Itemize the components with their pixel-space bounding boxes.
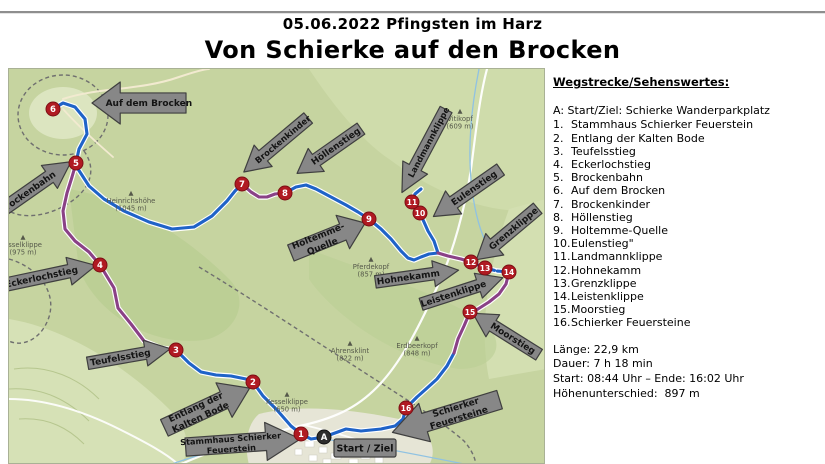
route-marker-1: 1 <box>294 427 308 441</box>
svg-text:▲: ▲ <box>129 189 134 197</box>
route-marker-4: 4 <box>93 258 107 272</box>
sidebar: Wegstrecke/Sehenswertes: A: Start/Ziel: … <box>553 76 819 402</box>
route-list-item: 13.Grenzklippe <box>553 277 819 290</box>
route-marker-14: 14 <box>502 265 516 279</box>
svg-text:8: 8 <box>282 189 288 199</box>
svg-text:2: 2 <box>250 378 256 388</box>
route-marker-11: 11 <box>405 195 419 209</box>
route-list-item: 10.Eulenstieg" <box>553 237 819 250</box>
svg-text:Auf dem Brocken: Auf dem Brocken <box>106 99 193 109</box>
svg-text:(848 m): (848 m) <box>403 350 430 358</box>
svg-text:15: 15 <box>465 308 475 317</box>
stat-line: Höhenunterschied: 897 m <box>553 387 819 402</box>
route-list-item: 14.Leistenklippe <box>553 290 819 303</box>
route-marker-2: 2 <box>246 375 260 389</box>
map-canvas: ▲Heinrichshöhe(1045 m)▲Pferdekopf(857 m)… <box>9 69 545 464</box>
svg-text:4: 4 <box>97 261 103 271</box>
route-list-item: 4.Eckerlochstieg <box>553 158 819 171</box>
route-marker-A: A <box>317 430 331 444</box>
route-marker-12: 12 <box>464 255 478 269</box>
route-marker-7: 7 <box>235 177 249 191</box>
route-list-item: 15.Moorstieg <box>553 303 819 316</box>
route-list-item: 6.Auf dem Brocken <box>553 184 819 197</box>
svg-text:▲: ▲ <box>348 339 353 347</box>
svg-text:(650 m): (650 m) <box>273 406 300 414</box>
svg-text:14: 14 <box>504 268 514 277</box>
svg-text:3: 3 <box>173 346 179 356</box>
svg-text:▲: ▲ <box>285 390 290 398</box>
svg-text:(822 m): (822 m) <box>336 355 363 363</box>
start-ziel-label: Start / Ziel <box>334 439 396 457</box>
route-marker-13: 13 <box>478 261 492 275</box>
route-list-item: 16.Schierker Feuersteine <box>553 316 819 329</box>
stats: Länge: 22,9 kmDauer: 7 h 18 minStart: 08… <box>553 343 819 402</box>
svg-text:6: 6 <box>50 105 56 115</box>
svg-text:1: 1 <box>298 430 304 440</box>
route-list-item: 9.Holtemme-Quelle <box>553 224 819 237</box>
svg-text:▲: ▲ <box>415 334 420 342</box>
route-marker-3: 3 <box>169 343 183 357</box>
header-rule <box>0 11 825 13</box>
svg-text:7: 7 <box>239 180 245 190</box>
svg-text:(1045 m): (1045 m) <box>115 205 147 213</box>
stat-line: Start: 08:44 Uhr – Ende: 16:02 Uhr <box>553 372 819 387</box>
route-list: 1.Stammhaus Schierker Feuerstein2.Entlan… <box>553 118 819 329</box>
svg-text:(609 m): (609 m) <box>446 123 473 131</box>
route-list-item: 8.Höllenstieg <box>553 211 819 224</box>
route-list-item: 7.Brockenkinder <box>553 198 819 211</box>
date-line: 05.06.2022 Pfingsten im Harz <box>0 15 825 34</box>
svg-text:16: 16 <box>401 404 411 413</box>
svg-text:11: 11 <box>407 198 417 207</box>
svg-text:12: 12 <box>466 258 476 267</box>
stat-line: Dauer: 7 h 18 min <box>553 357 819 372</box>
header: 05.06.2022 Pfingsten im Harz Von Schierk… <box>0 15 825 65</box>
svg-text:10: 10 <box>415 209 425 218</box>
route-list-item: 11.Landmannklippe <box>553 250 819 263</box>
svg-text:▲: ▲ <box>21 233 26 241</box>
sidebar-heading: Wegstrecke/Sehenswertes: <box>553 76 819 89</box>
page-title: Von Schierke auf den Brocken <box>0 35 825 65</box>
route-marker-8: 8 <box>278 186 292 200</box>
route-marker-9: 9 <box>362 212 376 226</box>
svg-text:▲: ▲ <box>458 107 463 115</box>
route-marker-15: 15 <box>463 305 477 319</box>
svg-text:Start / Ziel: Start / Ziel <box>337 444 394 455</box>
svg-text:5: 5 <box>73 159 79 169</box>
route-list-item: 3.Teufelsstieg <box>553 145 819 158</box>
route-marker-6: 6 <box>46 102 60 116</box>
route-marker-5: 5 <box>69 156 83 170</box>
route-map: ▲Heinrichshöhe(1045 m)▲Pferdekopf(857 m)… <box>8 68 545 464</box>
svg-text:(975 m): (975 m) <box>9 249 36 257</box>
route-list-item: 12.Hohnekamm <box>553 264 819 277</box>
route-list-item: 1.Stammhaus Schierker Feuerstein <box>553 118 819 131</box>
svg-text:A: A <box>321 433 328 443</box>
route-marker-16: 16 <box>399 401 413 415</box>
svg-text:9: 9 <box>366 215 372 225</box>
svg-text:▲: ▲ <box>369 255 374 263</box>
stat-line: Länge: 22,9 km <box>553 343 819 358</box>
route-list-item: 5.Brockenbahn <box>553 171 819 184</box>
svg-text:13: 13 <box>480 264 490 273</box>
start-ziel-item: A: Start/Ziel: Schierke Wanderparkplatz <box>553 104 819 117</box>
route-list-item: 2.Entlang der Kalten Bode <box>553 132 819 145</box>
